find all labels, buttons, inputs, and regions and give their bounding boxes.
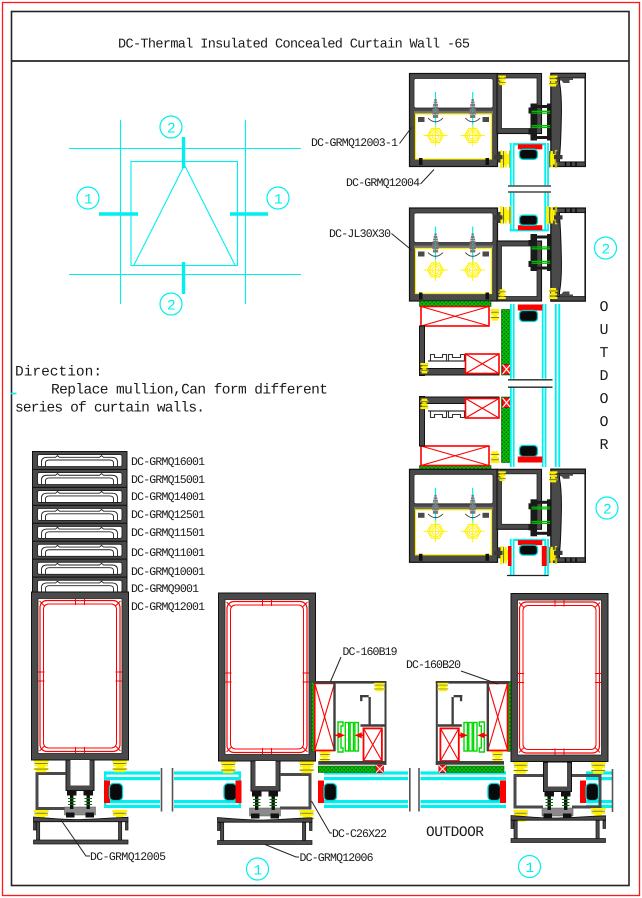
svg-text:2: 2 (167, 299, 176, 315)
svg-text:DC-GRMQ12006: DC-GRMQ12006 (300, 852, 374, 865)
svg-text:O: O (600, 414, 609, 431)
svg-text:DC-GRMQ12001: DC-GRMQ12001 (131, 601, 205, 614)
svg-text:series of curtain walls.: series of curtain walls. (15, 401, 205, 417)
svg-text:DC-GRMQ14001: DC-GRMQ14001 (131, 491, 205, 504)
svg-text:1: 1 (274, 193, 283, 209)
svg-text:2: 2 (603, 503, 612, 519)
svg-text:DC-JL30X30: DC-JL30X30 (329, 228, 391, 241)
svg-text:D: D (600, 368, 609, 385)
svg-text:DC-GRMQ10001: DC-GRMQ10001 (131, 566, 205, 579)
svg-text:1: 1 (84, 193, 93, 209)
svg-text:1: 1 (254, 864, 263, 880)
svg-text:DC-GRMQ11001: DC-GRMQ11001 (131, 547, 205, 560)
svg-text:DC-Thermal Insulated Concealed: DC-Thermal Insulated Concealed Curtain W… (118, 38, 470, 53)
svg-text:DC-GRMQ16001: DC-GRMQ16001 (131, 456, 205, 469)
svg-text:DC-GRMQ11501: DC-GRMQ11501 (131, 527, 205, 540)
svg-text:O: O (600, 299, 609, 316)
svg-text:DC-GRMQ9001: DC-GRMQ9001 (131, 583, 199, 596)
svg-text:DC-GRMQ12005: DC-GRMQ12005 (90, 851, 166, 864)
svg-text:Direction:: Direction: (15, 365, 102, 381)
svg-text:OUTDOOR: OUTDOOR (426, 825, 484, 841)
svg-text:DC-160B19: DC-160B19 (343, 646, 398, 659)
svg-text:U: U (600, 322, 609, 339)
svg-text:2: 2 (602, 243, 611, 259)
svg-text:DC-GRMQ12501: DC-GRMQ12501 (131, 509, 205, 522)
svg-text:DC-GRMQ12004: DC-GRMQ12004 (346, 177, 420, 190)
svg-text:O: O (600, 391, 609, 408)
svg-text:1: 1 (526, 861, 535, 877)
svg-text:DC-GRMQ12003-1: DC-GRMQ12003-1 (311, 137, 398, 150)
svg-text:2: 2 (167, 122, 176, 138)
svg-text:DC-C26X22: DC-C26X22 (332, 828, 387, 841)
svg-text:T: T (600, 345, 609, 362)
svg-text:R: R (600, 437, 609, 454)
svg-text:DC-160B20: DC-160B20 (406, 659, 461, 672)
svg-text:Replace mullion,Can form diffe: Replace mullion,Can form different (51, 383, 328, 399)
svg-text:DC-GRMQ15001: DC-GRMQ15001 (131, 474, 205, 487)
